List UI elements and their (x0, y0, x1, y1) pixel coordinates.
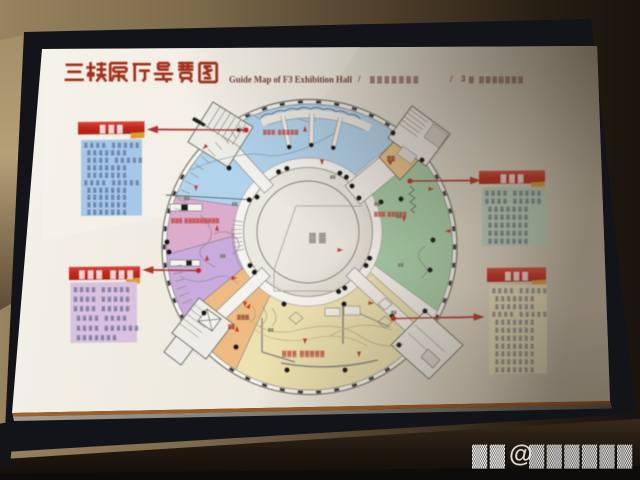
svg-text:▓▓: ▓▓ (472, 444, 508, 469)
svg-text:▓▓▓▓▓▓: ▓▓▓▓▓▓ (529, 444, 635, 469)
